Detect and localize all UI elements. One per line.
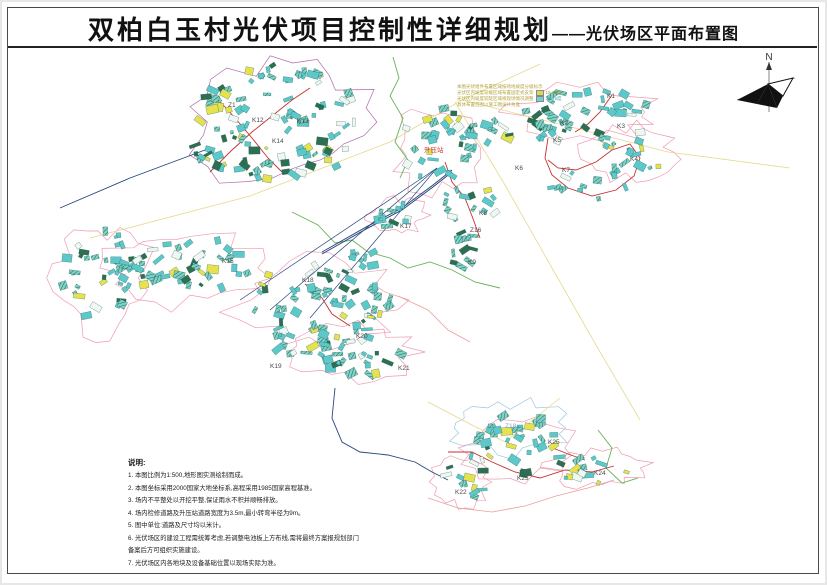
slope-20-25-swatch <box>536 96 544 102</box>
map-label-K5: K5 <box>553 137 561 144</box>
legend-line: 具体布置范围以施工图设计为准 <box>457 102 569 108</box>
map-label-K15: K15 <box>222 258 234 265</box>
map-label-K1: K1 <box>607 93 615 100</box>
map-label-K4: K4 <box>630 156 638 163</box>
map-label-Z18: Z18 <box>505 423 517 430</box>
map-label-Z16: Z16 <box>470 227 482 234</box>
north-label: N <box>765 52 772 63</box>
map-label-K19: K19 <box>270 363 282 370</box>
map-label-K18: K18 <box>302 277 314 284</box>
map-label-K23: K23 <box>517 475 529 482</box>
map-label-K21: K21 <box>398 365 410 372</box>
map-label-K8: K8 <box>479 210 487 217</box>
note-item: 4. 场内检修道路及升压站道路宽度为3.5m,最小转弯半径为9m。 <box>128 508 398 521</box>
note-item: 5. 图中单位:道路及尺寸均以米计。 <box>128 520 398 533</box>
legend: 本图光伏组件布置区域按场地坡度分级标示 光伏区内坡度较缓区域布置固定式支架 15… <box>457 84 569 108</box>
plan-sheet: Z1K12K13K14K1K2K3K4K5K6K7升压站K8Z16K9K17K1… <box>0 0 827 585</box>
note-item: 7. 光伏场区内各地块及设备基础位置以现场实际为准。 <box>128 558 398 571</box>
map-label-K2: K2 <box>560 120 568 127</box>
map-label-K24: K24 <box>594 470 606 477</box>
map-label-K12: K12 <box>252 117 264 124</box>
map-label-K13: K13 <box>297 118 309 125</box>
note-item: 6. 光伏场区的建设工程需统筹考虑,若调整电池板上方布线,需将最终方案报规划部门… <box>128 533 398 558</box>
title-divider <box>8 46 817 48</box>
slope-20-25-label: 20-25度 <box>546 96 562 102</box>
roads-and-lines <box>60 57 790 512</box>
map-label-K3: K3 <box>617 123 625 130</box>
map-label-K25: K25 <box>548 439 560 446</box>
map-label-K9: K9 <box>468 259 476 266</box>
sheet-title: 双柏白玉村光伏项目控制性详细规划——光伏场区平面布置图 <box>0 10 827 47</box>
map-label-Z1: Z1 <box>228 102 236 109</box>
note-item: 2. 本图坐标采用2000国家大地坐标系,高程采用1985国家高程基准。 <box>128 483 398 496</box>
map-label-K17: K17 <box>400 223 412 230</box>
map-label-K6: K6 <box>515 165 523 172</box>
map-label-K14: K14 <box>272 138 284 145</box>
notes-list: 1. 本图比例为1:500,地形图实测绘制而成。2. 本图坐标采用2000国家大… <box>128 470 398 570</box>
map-label-升压站: 升压站 <box>424 145 444 154</box>
notes-block: 说明: 1. 本图比例为1:500,地形图实测绘制而成。2. 本图坐标采用200… <box>128 457 398 570</box>
north-arrow: N <box>733 48 805 120</box>
map-canvas: Z1K12K13K14K1K2K3K4K5K6K7升压站K8Z16K9K17K1… <box>0 0 827 585</box>
note-item: 1. 本图比例为1:500,地形图实测绘制而成。 <box>128 470 398 483</box>
pv-array-clusters <box>58 62 661 500</box>
note-item: 3. 场内不平整处以开挖平整,保证雨水不积并顺畅排放。 <box>128 495 398 508</box>
map-label-K20: K20 <box>356 333 368 340</box>
map-label-K22: K22 <box>455 489 467 496</box>
notes-heading: 说明: <box>128 457 398 468</box>
title-main: 双柏白玉村光伏项目控制性详细规划 <box>88 15 552 45</box>
title-sub: ——光伏场区平面布置图 <box>552 26 739 43</box>
map-label-K7: K7 <box>562 167 570 174</box>
